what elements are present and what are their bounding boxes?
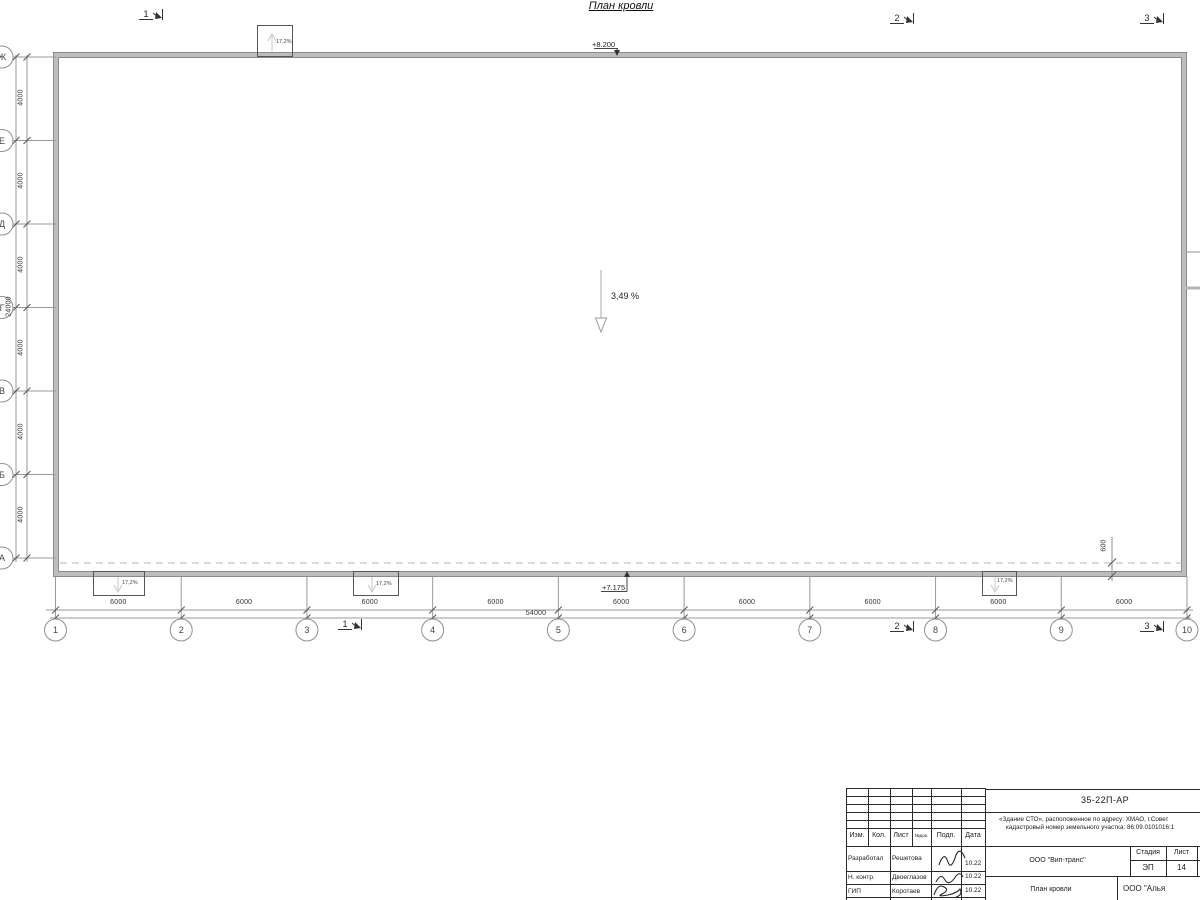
axis-number-9: 9 (1050, 625, 1072, 635)
axis-letter-Ж: Ж (0, 52, 13, 62)
axis-number-7: 7 (799, 625, 821, 635)
bay-dim-vertical: 4000 (18, 411, 25, 451)
axis-letter-Е: Е (0, 136, 13, 146)
section-marker-arrow (906, 624, 913, 631)
roof-slope-label: 3,49 % (611, 291, 639, 301)
total-dim-horizontal: 54000 (511, 610, 561, 617)
tb-col-list: Лист (890, 832, 912, 839)
tb-company: ООО "Вип-транс" (985, 857, 1130, 864)
elevation-top-label: +8.200 (592, 40, 615, 49)
section-marker-top-2: 2 (890, 13, 904, 24)
tb-role-2: Н. контр. (848, 874, 875, 881)
tb-col-kol: Кол. (868, 832, 890, 839)
axis-letter-В: В (0, 386, 13, 396)
tb-date-2: 10.22 (965, 873, 981, 880)
canopy-slope-label-3: 17,2% (376, 581, 392, 587)
bay-dim-horizontal: 6000 (727, 599, 767, 606)
section-marker-arrow (1156, 16, 1163, 23)
drawing-title: План кровли (560, 0, 682, 12)
bay-dim-vertical: 4000 (18, 495, 25, 535)
axis-linework (0, 0, 1200, 900)
section-marker-arrow (906, 16, 913, 23)
section-marker-top-3: 3 (1140, 13, 1154, 24)
tb-doc-number: 35-22П-АР (995, 795, 1200, 805)
section-marker-arrow (1156, 624, 1163, 631)
section-marker-bottom-2: 2 (890, 621, 904, 632)
section-marker-bottom-3: 3 (1140, 621, 1154, 632)
tb-date-1: 10.22 (965, 860, 981, 867)
elevation-eave-label: +7.175 (602, 583, 625, 592)
bay-dim-horizontal: 6000 (601, 599, 641, 606)
roof-plan-drawing-sheet: { "drawing": { "title": "План кровли", "… (0, 0, 1200, 900)
tb-role-1: Разработал (848, 855, 883, 862)
tb-stage-value: ЭП (1130, 863, 1166, 872)
tb-date-3: 10.22 (965, 887, 981, 894)
bay-dim-horizontal: 6000 (853, 599, 893, 606)
bay-dim-vertical: 4000 (18, 328, 25, 368)
tb-col-data: Дата (961, 832, 985, 839)
bay-dim-horizontal: 6000 (224, 599, 264, 606)
tb-sheet-value: 14 (1166, 863, 1197, 872)
axis-letter-Б: Б (0, 470, 13, 480)
bay-dim-horizontal: 6000 (350, 599, 390, 606)
axis-number-8: 8 (925, 625, 947, 635)
total-dim-vertical: 24000 (6, 282, 13, 332)
axis-number-6: 6 (673, 625, 695, 635)
drawing-canvas: План кровли +8.200 +7.175 3,49 % ЖЕДГВБА… (0, 0, 1200, 900)
bay-dim-horizontal: 6000 (98, 599, 138, 606)
bay-dim-horizontal: 6000 (978, 599, 1018, 606)
canopy-slope-label-1: 17,2% (276, 39, 292, 45)
tb-org: ООО "Алья (1123, 884, 1165, 893)
tb-name-2: Двоеглазов (892, 874, 927, 881)
tb-col-ndok: №док. (912, 834, 931, 839)
tb-name-3: Коротаев (892, 888, 920, 895)
bay-dim-horizontal: 6000 (476, 599, 516, 606)
axis-number-1: 1 (45, 625, 67, 635)
axis-number-4: 4 (422, 625, 444, 635)
axis-number-3: 3 (296, 625, 318, 635)
axis-number-5: 5 (547, 625, 569, 635)
bay-dim-vertical: 4000 (18, 244, 25, 284)
section-marker-bottom-1: 1 (338, 619, 352, 630)
tb-stage-label: Стадия (1130, 849, 1166, 856)
tb-object-line2: кадастровый номер земельного участка: 86… (1006, 824, 1174, 831)
bay-dim-horizontal: 6000 (1104, 599, 1144, 606)
tb-object-line1: «Здание СТО», расположенное по адресу: Х… (999, 816, 1168, 823)
tb-role-3: ГИП (848, 888, 861, 895)
section-marker-arrow (354, 622, 361, 629)
canopy-slope-label-4: 17,2% (997, 578, 1013, 584)
overhang-dim: 600 (1101, 526, 1108, 566)
axis-number-10: 10 (1176, 625, 1198, 635)
section-marker-top-1: 1 (139, 9, 153, 20)
tb-sheet-label: Лист (1166, 849, 1197, 856)
canopy-slope-label-2: 17,2% (122, 580, 138, 586)
section-marker-arrow (155, 12, 162, 19)
axis-number-2: 2 (170, 625, 192, 635)
tb-col-podp: Подп. (931, 832, 961, 839)
tb-col-izm: Изм. (846, 832, 868, 839)
bay-dim-vertical: 4000 (18, 161, 25, 201)
tb-name-1: Решетова (892, 855, 922, 862)
axis-letter-Д: Д (0, 219, 13, 229)
bay-dim-vertical: 4000 (18, 77, 25, 117)
axis-letter-А: А (0, 553, 13, 563)
tb-sheet-title: План кровли (985, 886, 1117, 893)
